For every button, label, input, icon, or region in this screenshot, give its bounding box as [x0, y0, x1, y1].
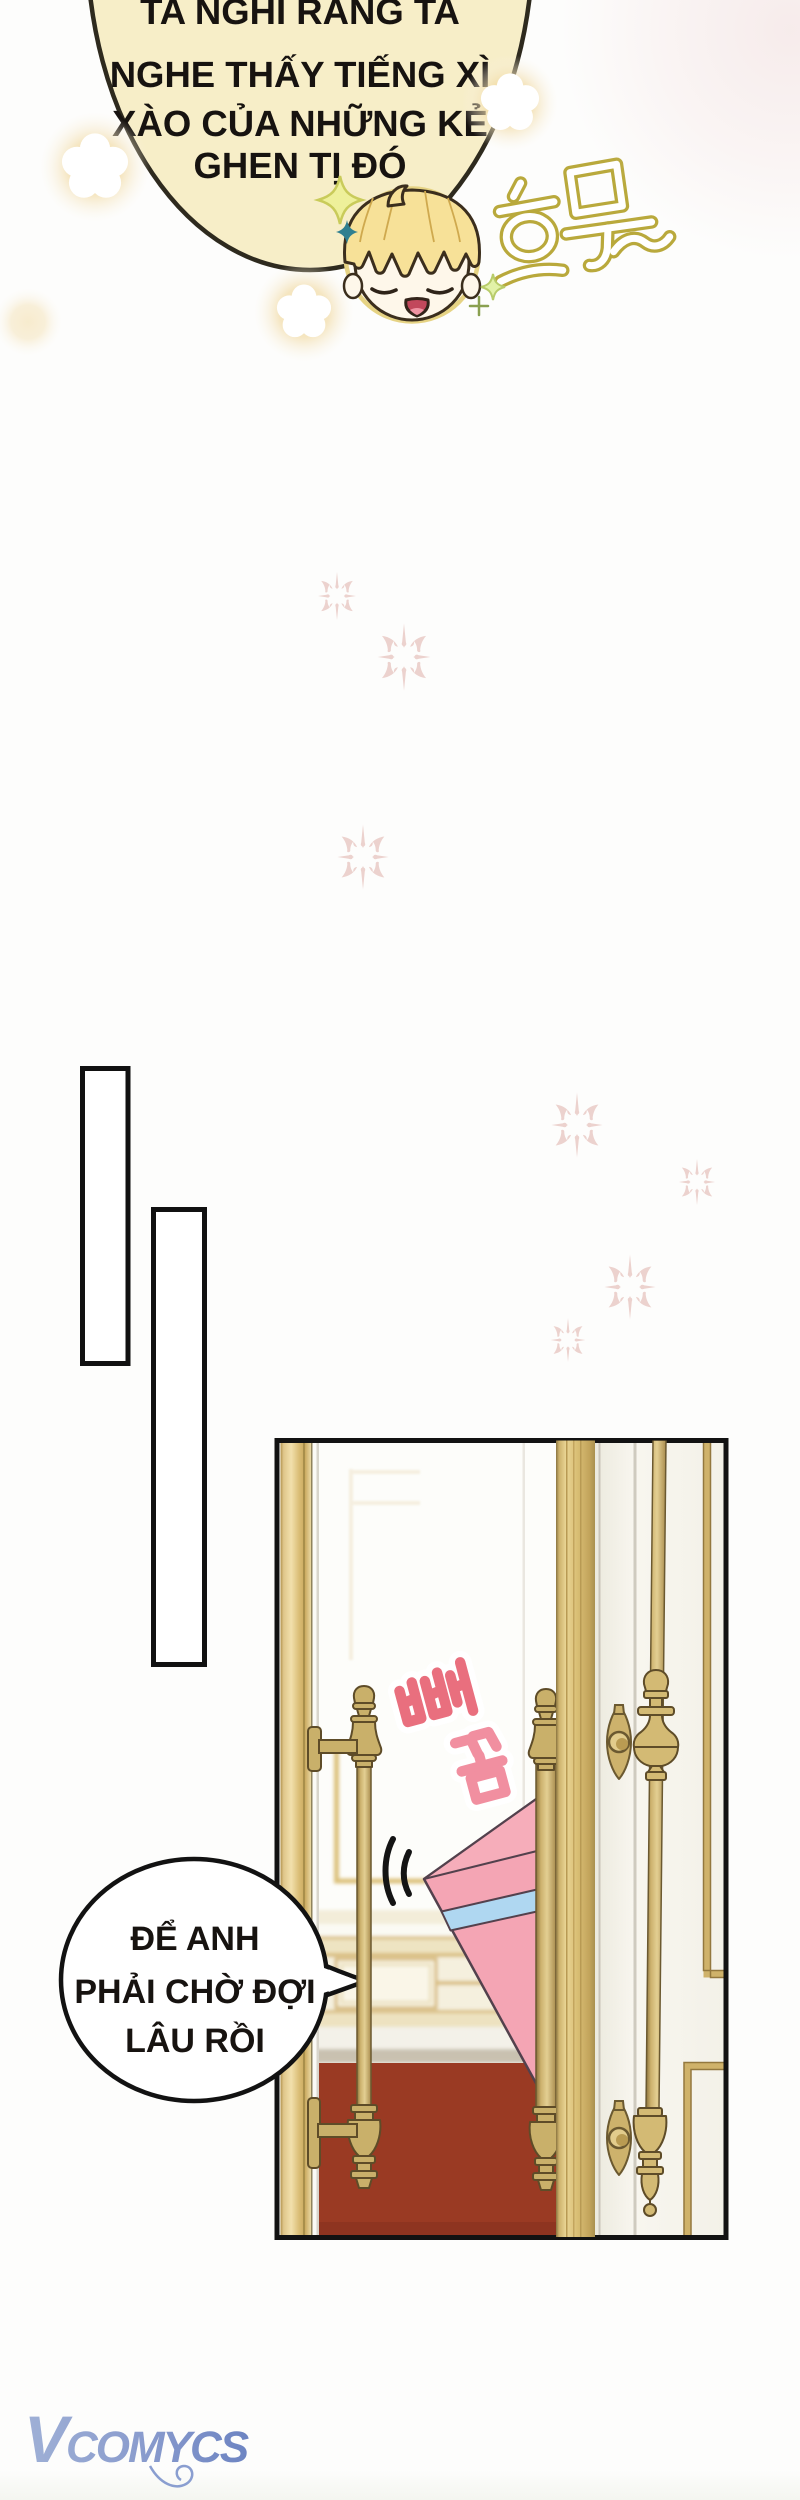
svg-text:PHẢI CHỜ ĐỢI: PHẢI CHỜ ĐỢI [74, 1972, 315, 2011]
svg-text:NGHE THẤY TIẾNG XÌ: NGHE THẤY TIẾNG XÌ [110, 54, 491, 95]
svg-text:GHEN TỊ ĐÓ: GHEN TỊ ĐÓ [194, 145, 407, 186]
svg-text:ĐỂ ANH: ĐỂ ANH [130, 1919, 259, 1958]
svg-text:XÀO CỦA NHỮNG KẺ: XÀO CỦA NHỮNG KẺ [112, 103, 488, 144]
svg-text:LÂU RỒI: LÂU RỒI [125, 2021, 265, 2060]
svg-text:TA NGHĨ RẰNG TA: TA NGHĨ RẰNG TA [140, 0, 460, 32]
